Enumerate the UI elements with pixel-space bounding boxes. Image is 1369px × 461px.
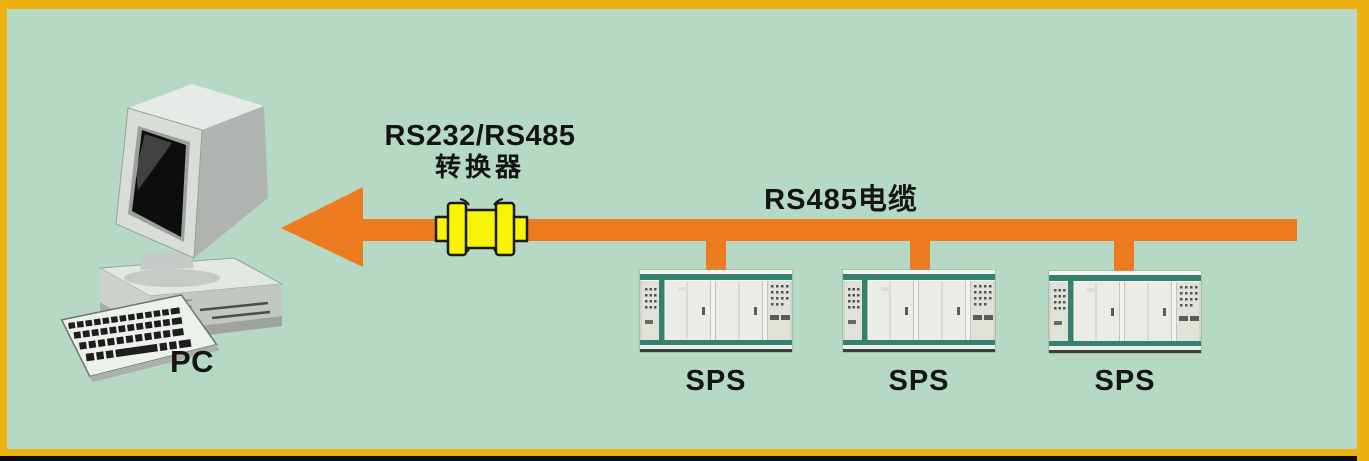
sps-label-1: SPS	[656, 365, 776, 398]
cable-drop-3	[1114, 239, 1134, 272]
sps-label-3: SPS	[1065, 365, 1185, 398]
converter-icon	[436, 199, 527, 255]
sps-label-2: SPS	[859, 365, 979, 398]
sps-cabinet-icon-1	[640, 270, 792, 352]
converter-label-line1: RS232/RS485	[340, 121, 620, 152]
diagram-canvas: RS232/RS485 转换器 RS485电缆 PC SPS SPS SPS	[0, 0, 1369, 461]
converter-label: RS232/RS485 转换器	[340, 121, 620, 183]
cable-drop-2	[910, 239, 930, 272]
cable-drop-1	[706, 239, 726, 272]
sps-cabinet-icon-3	[1049, 271, 1201, 353]
sps-cabinet-icon-2	[843, 270, 995, 352]
pc-computer-icon	[61, 84, 282, 385]
cable-arrow-icon	[281, 187, 363, 267]
converter-label-line2: 转换器	[340, 152, 620, 183]
pc-label: PC	[132, 344, 252, 380]
cable-label: RS485电缆	[716, 176, 966, 218]
